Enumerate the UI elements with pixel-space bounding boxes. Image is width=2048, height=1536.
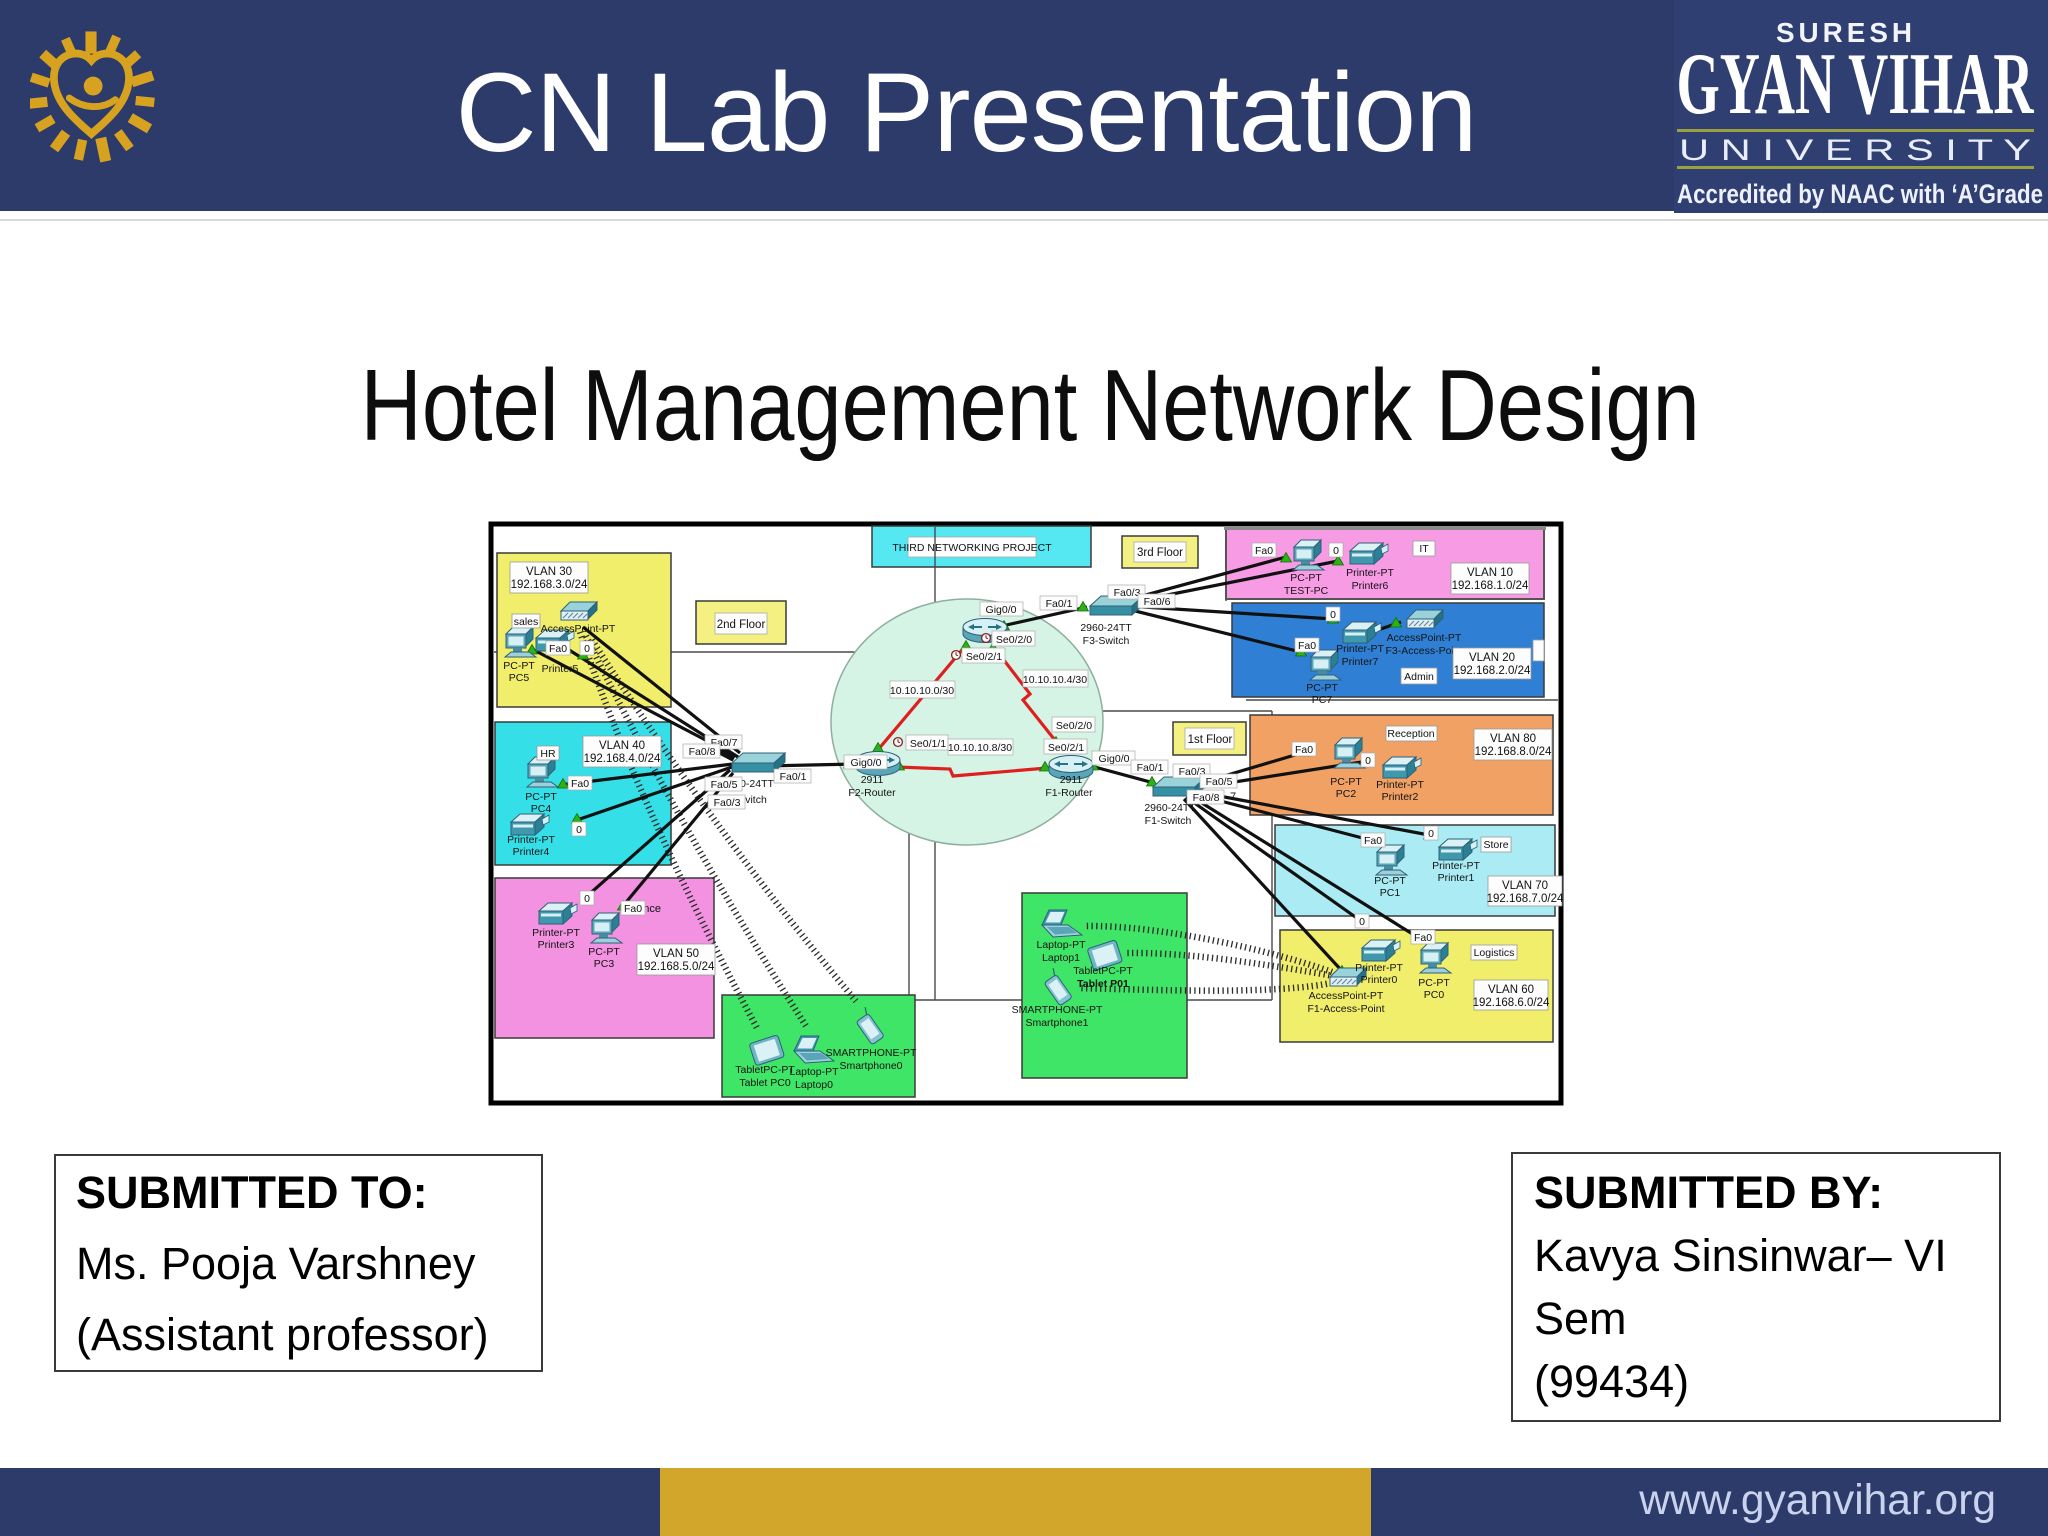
svg-text:sales: sales — [514, 616, 539, 628]
svg-text:F3-Access-Point: F3-Access-Point — [1385, 645, 1462, 657]
svg-text:7: 7 — [1230, 791, 1236, 803]
svg-text:Gig0/0: Gig0/0 — [851, 757, 882, 769]
svg-text:Printer-PT: Printer-PT — [1355, 962, 1403, 974]
svg-text:Se0/2/1: Se0/2/1 — [1048, 742, 1084, 754]
svg-text:Fa0/1: Fa0/1 — [1137, 762, 1164, 774]
svg-text:PC-PT: PC-PT — [1374, 875, 1406, 887]
svg-text:PC-PT: PC-PT — [503, 660, 535, 672]
svg-text:Printer-PT: Printer-PT — [1376, 779, 1424, 791]
svg-text:Fa0: Fa0 — [1298, 640, 1316, 652]
svg-text:Tablet PC0: Tablet PC0 — [739, 1077, 791, 1089]
svg-text:Laptop-PT: Laptop-PT — [1036, 939, 1086, 951]
svg-text:PC7: PC7 — [1312, 694, 1333, 706]
svg-text:Gig0/0: Gig0/0 — [1099, 753, 1130, 765]
svg-text:Printer5: Printer5 — [542, 663, 579, 675]
svg-text:Admin: Admin — [1404, 671, 1434, 683]
svg-text:VLAN 70: VLAN 70 — [1502, 880, 1548, 892]
svg-text:Se0/2/0: Se0/2/0 — [996, 634, 1032, 646]
svg-text:Fa0: Fa0 — [624, 903, 642, 915]
svg-text:Logistics: Logistics — [1474, 947, 1515, 959]
svg-text:2960-24TT: 2960-24TT — [1080, 622, 1132, 634]
svg-text:10.10.10.8/30: 10.10.10.8/30 — [948, 742, 1012, 754]
svg-text:0: 0 — [1359, 916, 1365, 928]
svg-text:Laptop-PT: Laptop-PT — [789, 1066, 839, 1078]
svg-text:Printer-PT: Printer-PT — [1432, 860, 1480, 872]
svg-text:0: 0 — [1330, 609, 1336, 621]
svg-text:0: 0 — [576, 824, 582, 836]
svg-text:0-24TT: 0-24TT — [740, 778, 774, 790]
svg-text:TEST-PC: TEST-PC — [1284, 585, 1329, 597]
svg-text:VLAN 40: VLAN 40 — [599, 740, 645, 752]
svg-text:0: 0 — [1333, 545, 1339, 557]
svg-text:Fa0: Fa0 — [549, 643, 567, 655]
svg-text:F1-Router: F1-Router — [1045, 787, 1093, 799]
svg-text:VLAN 60: VLAN 60 — [1488, 984, 1534, 996]
svg-text:Laptop1: Laptop1 — [1042, 952, 1080, 964]
svg-text:Printer3: Printer3 — [538, 939, 575, 951]
svg-text:Fa0/8: Fa0/8 — [689, 746, 716, 758]
svg-text:F1-Access-Point: F1-Access-Point — [1307, 1003, 1384, 1015]
svg-text:Printer4: Printer4 — [513, 846, 550, 858]
svg-text:192.168.8.0/24: 192.168.8.0/24 — [1475, 746, 1552, 758]
svg-text:VLAN 10: VLAN 10 — [1467, 567, 1513, 579]
svg-text:SMARTPHONE-PT: SMARTPHONE-PT — [1012, 1004, 1103, 1016]
svg-text:Store: Store — [1483, 839, 1508, 851]
svg-text:PC-PT: PC-PT — [1418, 977, 1450, 989]
svg-text:VLAN 80: VLAN 80 — [1490, 733, 1536, 745]
svg-text:Printer-PT: Printer-PT — [1346, 567, 1394, 579]
svg-text:Fa0/6: Fa0/6 — [1144, 596, 1171, 608]
svg-text:VLAN 30: VLAN 30 — [526, 566, 572, 578]
svg-text:0: 0 — [584, 643, 590, 655]
svg-text:3rd Floor: 3rd Floor — [1137, 547, 1183, 559]
svg-text:Fa0/8: Fa0/8 — [1193, 792, 1220, 804]
svg-text:2911: 2911 — [1060, 774, 1083, 786]
svg-text:Printer7: Printer7 — [1342, 656, 1379, 668]
svg-text:PC-PT: PC-PT — [525, 791, 557, 803]
svg-text:PC-PT: PC-PT — [588, 946, 620, 958]
svg-text:Fa0: Fa0 — [1255, 545, 1273, 557]
svg-text:Printer1: Printer1 — [1438, 872, 1475, 884]
svg-text:VLAN 50: VLAN 50 — [653, 948, 699, 960]
svg-text:PC2: PC2 — [1336, 788, 1357, 800]
svg-text:10.10.10.0/30: 10.10.10.0/30 — [890, 685, 954, 697]
svg-text:HR: HR — [540, 748, 556, 760]
svg-text:Se0/1/1: Se0/1/1 — [910, 738, 946, 750]
svg-text:Smartphone0: Smartphone0 — [839, 1060, 902, 1072]
svg-text:F1-Switch: F1-Switch — [1145, 815, 1192, 827]
svg-text:F2-Router: F2-Router — [848, 787, 896, 799]
svg-text:Laptop0: Laptop0 — [795, 1079, 833, 1091]
svg-text:192.168.2.0/24: 192.168.2.0/24 — [1454, 665, 1531, 677]
svg-text:Fa0/3: Fa0/3 — [1114, 587, 1141, 599]
svg-text:PC3: PC3 — [594, 958, 615, 970]
svg-text:Fa0/3: Fa0/3 — [714, 797, 741, 809]
svg-text:Gig0/0: Gig0/0 — [986, 604, 1017, 616]
svg-text:Se0/2/1: Se0/2/1 — [966, 651, 1002, 663]
svg-text:AccessPoint-PT: AccessPoint-PT — [541, 623, 616, 635]
svg-text:192.168.1.0/24: 192.168.1.0/24 — [1452, 580, 1529, 592]
svg-text:AccessPoint-PT: AccessPoint-PT — [1387, 632, 1462, 644]
svg-text:TabletPC-PT: TabletPC-PT — [735, 1064, 795, 1076]
svg-text:TabletPC-PT: TabletPC-PT — [1073, 965, 1133, 977]
svg-text:PC1: PC1 — [1380, 887, 1401, 899]
svg-text:Smartphone1: Smartphone1 — [1025, 1017, 1088, 1029]
svg-text:192.168.3.0/24: 192.168.3.0/24 — [511, 579, 588, 591]
svg-text:PC5: PC5 — [509, 672, 530, 684]
svg-text:Se0/2/0: Se0/2/0 — [1056, 720, 1092, 732]
svg-text:Fa0: Fa0 — [1295, 744, 1313, 756]
svg-text:Printer-PT: Printer-PT — [532, 927, 580, 939]
svg-text:0: 0 — [1428, 828, 1434, 840]
svg-text:PC-PT: PC-PT — [1290, 572, 1322, 584]
svg-text:F3-Switch: F3-Switch — [1083, 635, 1130, 647]
svg-text:Tablet P01: Tablet P01 — [1077, 978, 1129, 990]
svg-text:2911: 2911 — [861, 774, 884, 786]
svg-text:0: 0 — [584, 893, 590, 905]
svg-text:0: 0 — [1365, 755, 1371, 767]
svg-text:Fa0/5: Fa0/5 — [1206, 776, 1233, 788]
svg-text:Printer2: Printer2 — [1382, 791, 1419, 803]
svg-text:Printer6: Printer6 — [1352, 580, 1389, 592]
svg-text:SMARTPHONE-PT: SMARTPHONE-PT — [826, 1047, 917, 1059]
svg-text:192.168.7.0/24: 192.168.7.0/24 — [1487, 893, 1564, 905]
svg-text:1st Floor: 1st Floor — [1188, 734, 1233, 746]
svg-text:VLAN 20: VLAN 20 — [1469, 652, 1515, 664]
svg-text:THIRD NETWORKING PROJECT: THIRD NETWORKING PROJECT — [892, 542, 1052, 554]
svg-text:Reception: Reception — [1387, 728, 1434, 740]
svg-text:PC-PT: PC-PT — [1306, 682, 1338, 694]
svg-text:10.10.10.4/30: 10.10.10.4/30 — [1023, 674, 1087, 686]
svg-text:192.168.4.0/24: 192.168.4.0/24 — [584, 753, 661, 765]
svg-text:192.168.5.0/24: 192.168.5.0/24 — [638, 961, 715, 973]
svg-text:IT: IT — [1419, 543, 1429, 555]
svg-text:Fa0: Fa0 — [571, 778, 589, 790]
svg-text:Fa0: Fa0 — [1364, 835, 1382, 847]
svg-text:PC4: PC4 — [531, 803, 552, 815]
svg-text:Printer-PT: Printer-PT — [1336, 643, 1384, 655]
svg-text:vitch: vitch — [745, 794, 767, 806]
svg-text:Fa0/1: Fa0/1 — [1046, 598, 1073, 610]
svg-text:2nd Floor: 2nd Floor — [717, 619, 766, 631]
svg-text:Fa0: Fa0 — [1414, 932, 1432, 944]
svg-text:Printer0: Printer0 — [1361, 974, 1398, 986]
svg-text:PC0: PC0 — [1424, 989, 1445, 1001]
svg-text:Printer-PT: Printer-PT — [507, 834, 555, 846]
svg-text:192.168.6.0/24: 192.168.6.0/24 — [1473, 997, 1550, 1009]
svg-text:PC-PT: PC-PT — [1330, 776, 1362, 788]
svg-text:AccessPoint-PT: AccessPoint-PT — [1309, 990, 1384, 1002]
svg-text:Fa0/1: Fa0/1 — [780, 771, 807, 783]
svg-text:Fa0/5: Fa0/5 — [711, 779, 738, 791]
